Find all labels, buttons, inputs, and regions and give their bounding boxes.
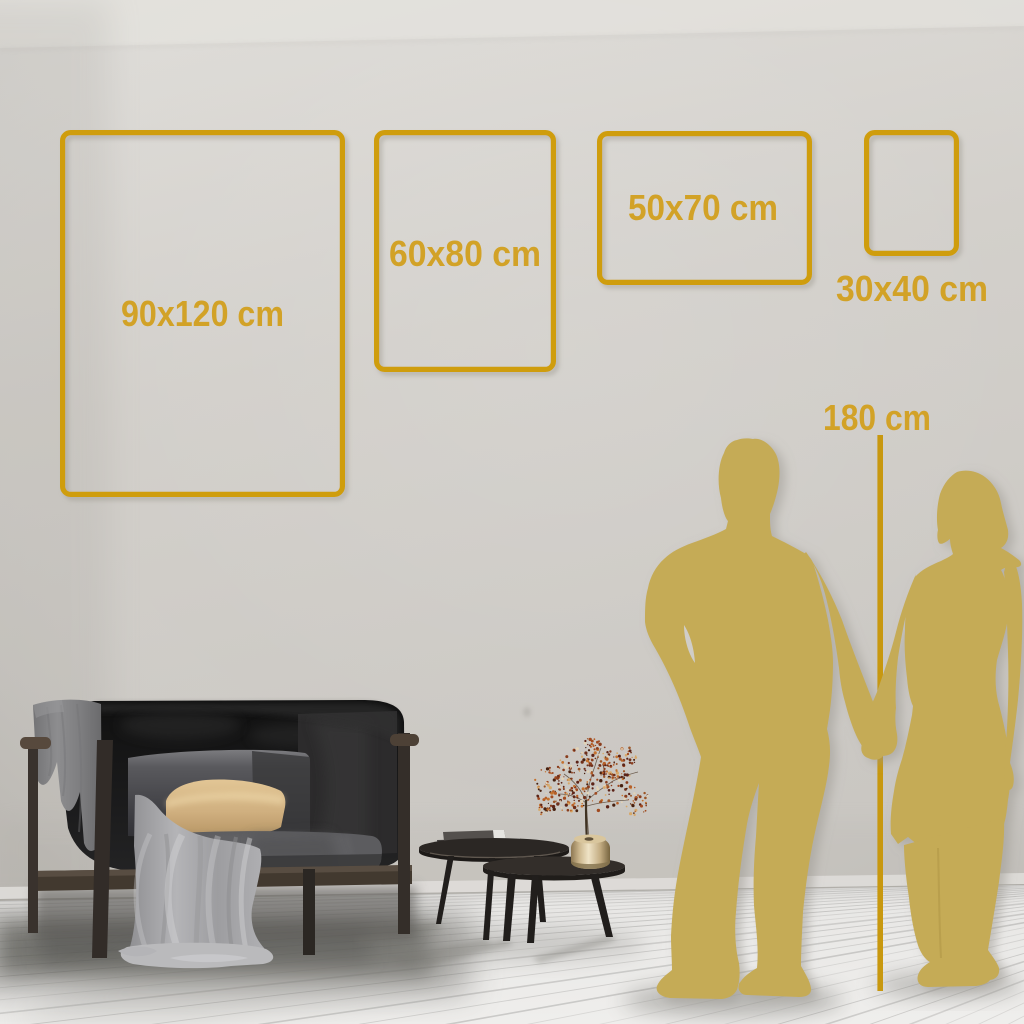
svg-text:90x120 cm: 90x120 cm <box>121 293 284 334</box>
svg-text:60x80 cm: 60x80 cm <box>389 233 541 274</box>
svg-text:180 cm: 180 cm <box>823 397 931 438</box>
svg-text:50x70 cm: 50x70 cm <box>628 187 778 228</box>
svg-text:30x40 cm: 30x40 cm <box>836 268 988 309</box>
